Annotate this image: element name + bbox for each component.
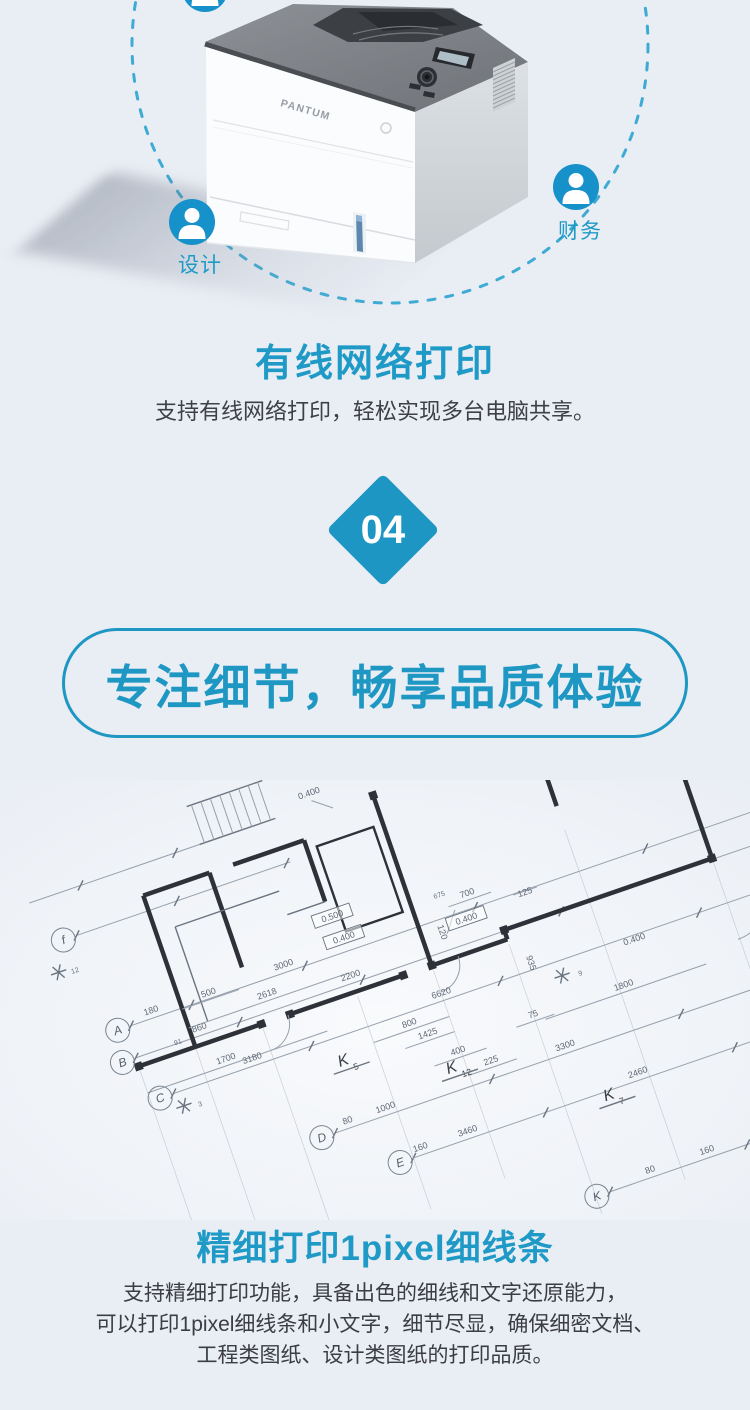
blueprint-section: f A B C D E K 180 3000 860 2200 3180 662… [0,780,750,1220]
quality-banner: 专注细节，畅享品质体验 [62,628,688,738]
section-number-diamond: 04 [326,473,439,586]
role-label-finance: 财务 [558,215,602,245]
user-icon-top [182,0,228,12]
section-text-detail: 支持精细打印功能，具备出色的细线和文字还原能力， 可以打印1pixel细线条和小… [45,1278,705,1371]
product-detail-page: PANTUM [0,0,750,1410]
detail-line-2: 可以打印1pixel细线条和小文字，细节尽显，确保细密文档、 [96,1313,655,1336]
section-number: 04 [361,508,406,553]
section-title-network: 有线网络打印 [0,332,750,387]
hero-printer-scene: PANTUM [0,0,750,330]
role-label-design: 设计 [178,249,222,279]
printer-dpad-center [425,75,430,80]
section-title-detail: 精细打印1pixel细线条 [0,1220,750,1271]
paper-indicator-cap [356,215,362,222]
blueprint-paper [0,780,750,1220]
banner-title: 专注细节，畅享品质体验 [106,649,645,718]
printer-illustration: PANTUM [183,0,543,280]
detail-line-3: 工程类图纸、设计类图纸的打印品质。 [197,1344,554,1367]
detail-line-1: 支持精细打印功能，具备出色的细线和文字还原能力， [123,1282,627,1305]
user-icon-design [169,199,215,245]
user-icon-finance [553,164,599,210]
section-subtitle-network: 支持有线网络打印，轻松实现多台电脑共享。 [0,394,750,426]
blueprint-drawing: f A B C D E K 180 3000 860 2200 3180 662… [0,780,750,1220]
